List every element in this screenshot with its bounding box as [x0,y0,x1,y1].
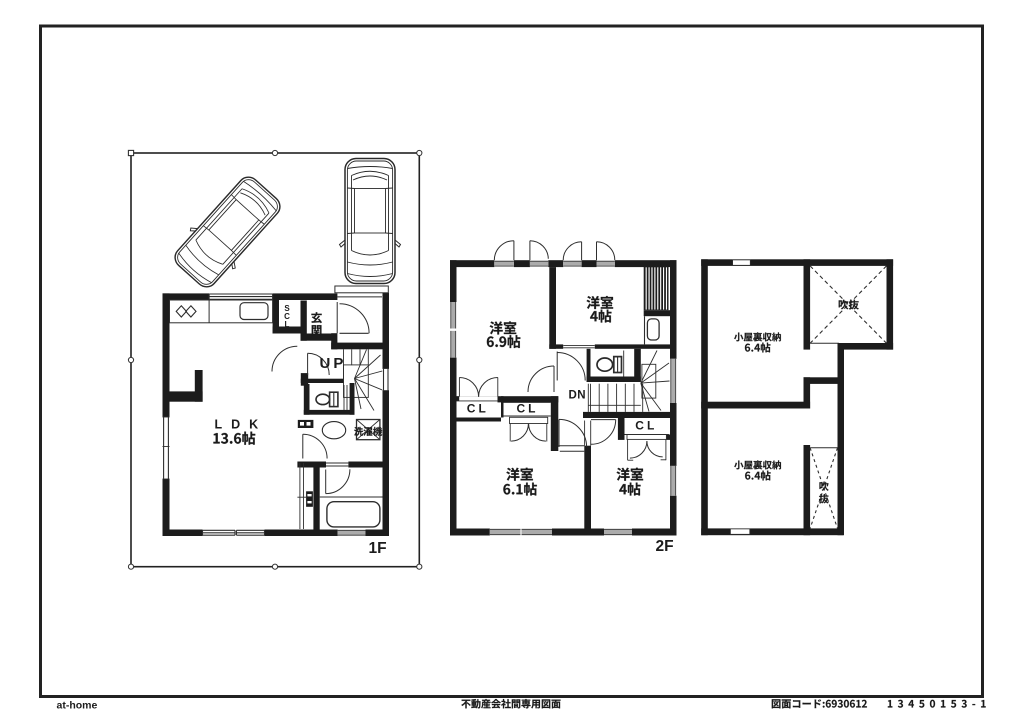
svg-text:CL: CL [517,402,539,416]
svg-text:CL: CL [467,402,489,416]
svg-text:DN: DN [568,389,586,401]
svg-text:2F: 2F [655,538,673,555]
svg-text:LDK: LDK [215,417,268,431]
svg-text:UP: UP [320,355,347,372]
svg-text:at-home: at-home [57,700,98,712]
svg-text:CL: CL [635,418,657,432]
svg-text:1F: 1F [368,540,386,557]
svg-text:L: L [285,320,290,329]
